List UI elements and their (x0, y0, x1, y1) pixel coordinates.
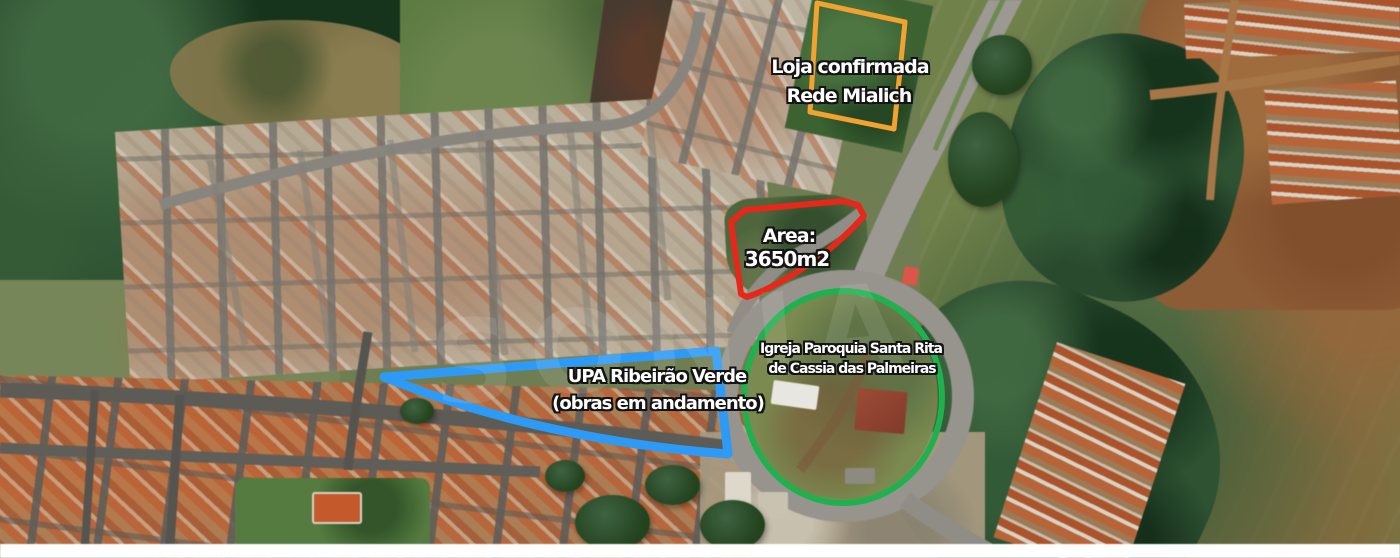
church-label-line1: Igreja Paroquia Santa Rita (760, 342, 942, 357)
upa-label-line1: UPA Ribeirão Verde (568, 367, 746, 387)
store-label-line2: Rede Mialich (787, 86, 912, 107)
church-label-line2: de Cassia das Palmeiras (768, 362, 935, 377)
store-label-line1: Loja confirmada (771, 57, 928, 78)
area-label-line1: Area: (763, 226, 815, 247)
upa-label-line2: (obras em andamento) (552, 394, 764, 414)
satellite-map: SONIA Loja confirmada Rede Mialich Area:… (0, 0, 1400, 558)
area-label-line2: 3650m2 (745, 248, 829, 270)
